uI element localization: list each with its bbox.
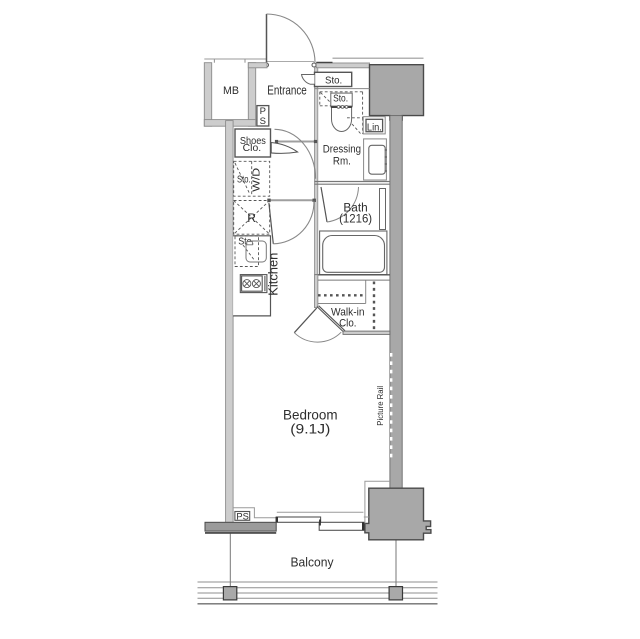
svg-text:Entrance: Entrance: [267, 83, 307, 97]
svg-text:Sto.: Sto.: [333, 94, 348, 105]
svg-text:Rm.: Rm.: [333, 155, 351, 167]
svg-text:Sto.: Sto.: [237, 174, 251, 185]
svg-text:W/D: W/D: [251, 167, 263, 191]
svg-text:Sto.: Sto.: [325, 75, 342, 87]
svg-text:Picture Rail: Picture Rail: [375, 386, 385, 426]
svg-text:S: S: [260, 116, 266, 127]
svg-text:Dressing: Dressing: [323, 144, 361, 156]
svg-text:R: R: [247, 211, 256, 225]
svg-text:Lin.: Lin.: [367, 123, 382, 134]
svg-text:Balcony: Balcony: [291, 555, 334, 570]
svg-text:Kitchen: Kitchen: [265, 253, 280, 296]
svg-text:(9.1J): (9.1J): [290, 421, 330, 437]
svg-text:PS: PS: [236, 512, 249, 523]
svg-text:Clo.: Clo.: [243, 143, 262, 154]
svg-text:(1216): (1216): [339, 214, 372, 226]
svg-text:Clo.: Clo.: [339, 318, 356, 330]
svg-text:MB: MB: [223, 85, 239, 97]
